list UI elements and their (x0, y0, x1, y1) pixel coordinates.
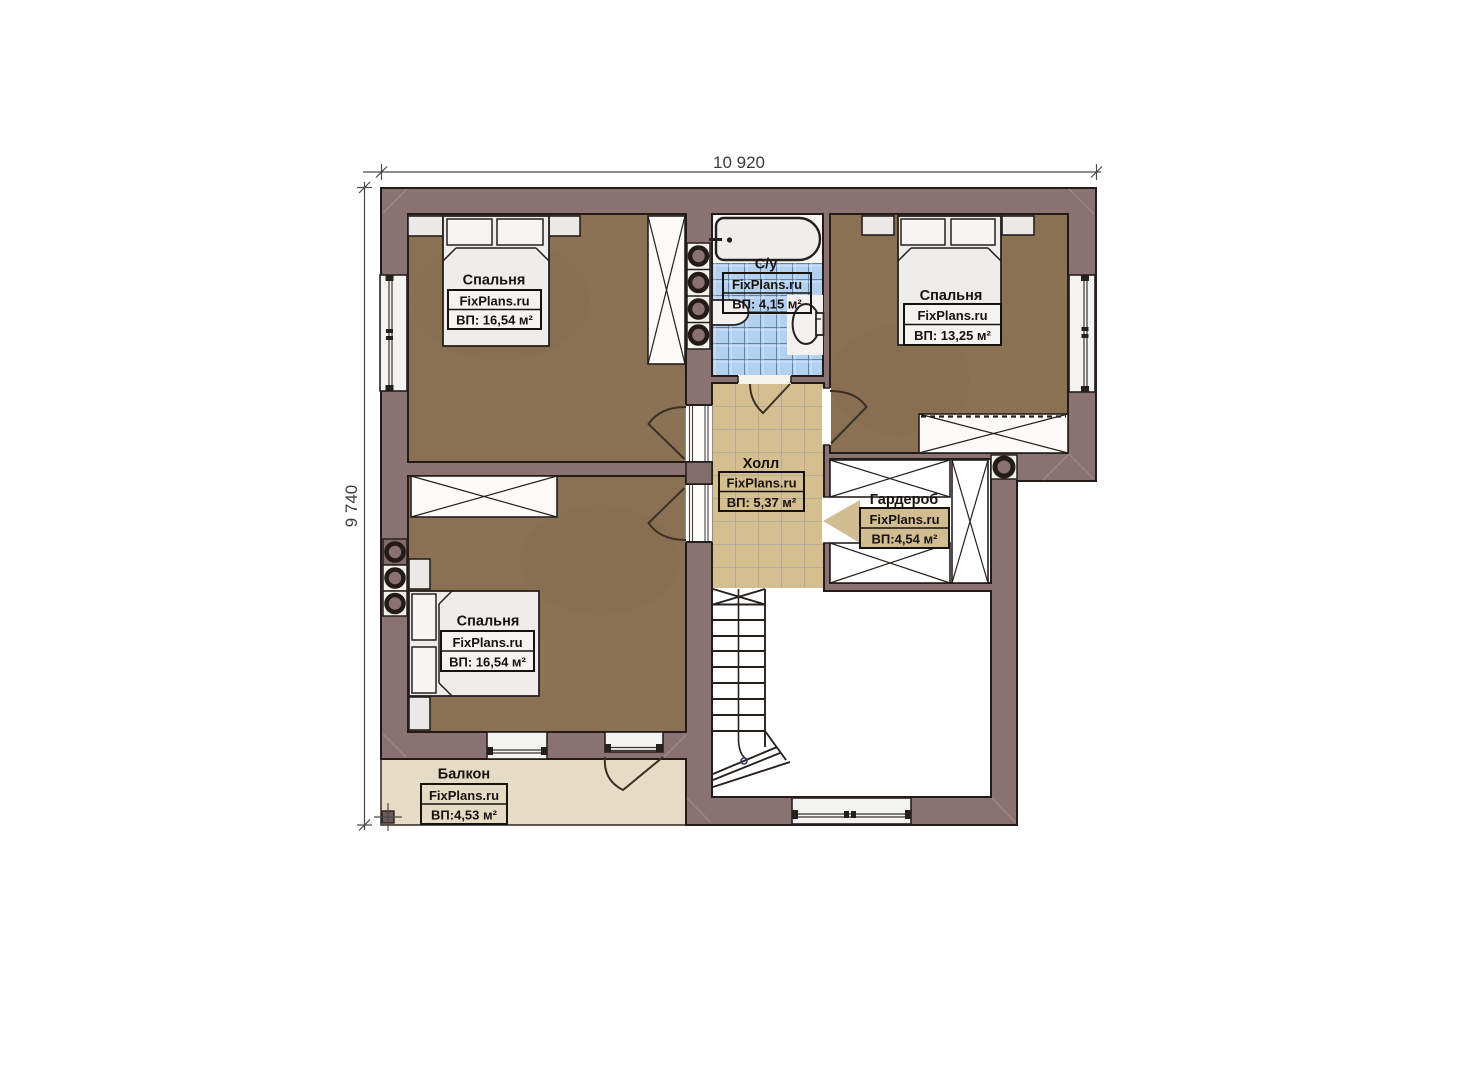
svg-text:Холл: Холл (743, 456, 779, 472)
svg-text:FixPlans.ru: FixPlans.ru (429, 788, 499, 803)
svg-text:Спальня: Спальня (463, 273, 526, 289)
svg-text:ВП:4,54 м²: ВП:4,54 м² (872, 532, 939, 547)
svg-text:Балкон: Балкон (438, 767, 490, 783)
svg-text:10 920: 10 920 (713, 153, 765, 172)
svg-text:FixPlans.ru: FixPlans.ru (917, 308, 987, 323)
svg-text:FixPlans.ru: FixPlans.ru (452, 635, 522, 650)
svg-text:Гардероб: Гардероб (870, 492, 939, 508)
svg-text:ВП:4,53 м²: ВП:4,53 м² (431, 808, 498, 823)
svg-text:FixPlans.ru: FixPlans.ru (869, 512, 939, 527)
svg-text:С/у: С/у (755, 257, 778, 273)
svg-text:ВП: 13,25 м²: ВП: 13,25 м² (914, 328, 991, 343)
svg-text:ВП: 5,37 м²: ВП: 5,37 м² (727, 495, 797, 510)
svg-text:FixPlans.ru: FixPlans.ru (732, 277, 802, 292)
svg-text:ВП: 4,15 м²: ВП: 4,15 м² (732, 297, 802, 312)
svg-text:ВП: 16,54 м²: ВП: 16,54 м² (456, 313, 533, 328)
svg-text:FixPlans.ru: FixPlans.ru (726, 475, 796, 490)
svg-text:Спальня: Спальня (920, 288, 983, 304)
svg-text:ВП: 16,54 м²: ВП: 16,54 м² (449, 655, 526, 670)
svg-text:Спальня: Спальня (457, 614, 520, 630)
svg-text:FixPlans.ru: FixPlans.ru (459, 294, 529, 309)
svg-text:9 740: 9 740 (342, 485, 361, 528)
